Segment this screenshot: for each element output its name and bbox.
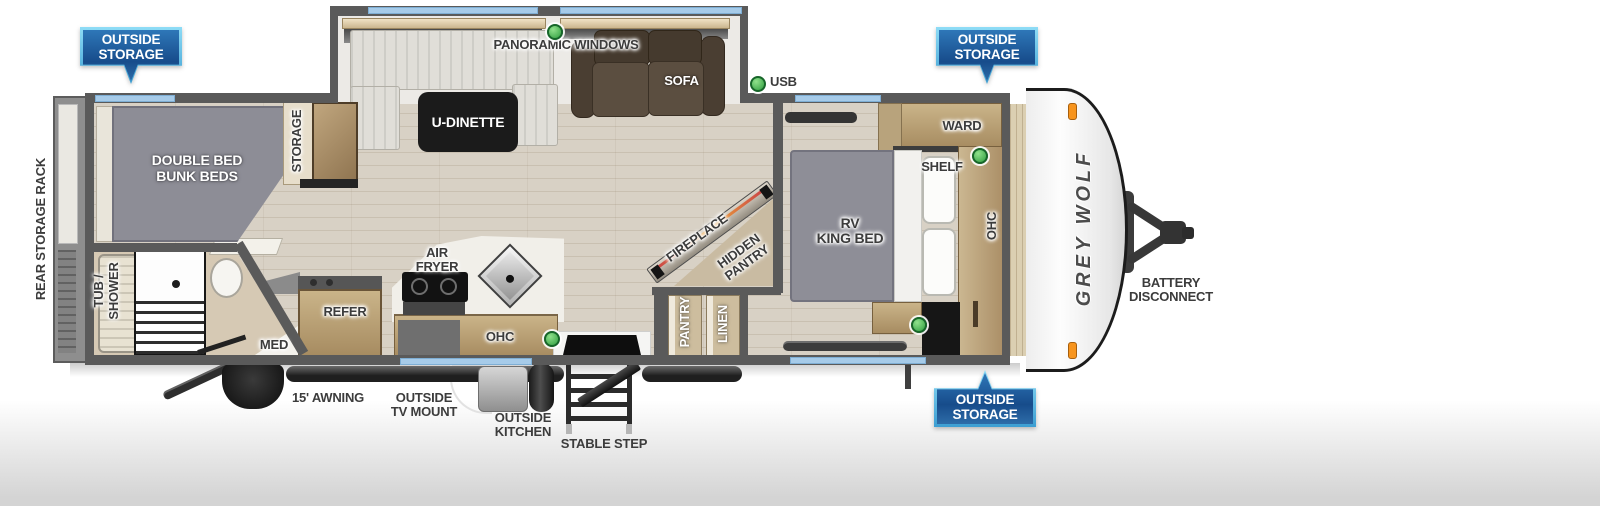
- entry-door-strip: [400, 358, 532, 365]
- bedroom-window-bottom: [790, 357, 926, 364]
- slideout-wall-right: [740, 6, 748, 103]
- dinette-table: U-DINETTE: [418, 92, 518, 152]
- bedroom-window-top: [795, 95, 881, 102]
- rv-king-bed-label: RV KING BED: [806, 216, 894, 246]
- stable-step-label: STABLE STEP: [558, 437, 650, 451]
- outside-storage-banner-bottom-right: OUTSIDE STORAGE: [934, 370, 1036, 427]
- clearance-light-bottom-icon: [1068, 342, 1077, 359]
- window-valance-right: [560, 18, 730, 29]
- outside-storage-banner-top-left: OUTSIDE STORAGE: [80, 27, 182, 84]
- usb-indicator-dot: [750, 76, 766, 92]
- stove-cooktop: [402, 272, 468, 302]
- slideout-window-left: [368, 7, 538, 14]
- entry-mat: [563, 335, 641, 355]
- ground-shadow: [0, 400, 1600, 506]
- refer-hinge-icon: [310, 279, 317, 286]
- front-wall: [1002, 93, 1010, 365]
- awning-rail: [642, 366, 742, 382]
- rear-rack-panel-top: [58, 104, 78, 244]
- outside-kitchen-cylinder: [529, 363, 554, 412]
- ohc-bedroom-label: OHC: [985, 206, 999, 246]
- step-foot: [626, 424, 632, 434]
- outside-tv-mount-label: OUTSIDE TV MOUNT: [384, 391, 464, 419]
- med-label: MED: [252, 338, 296, 352]
- awning-bracket: [905, 361, 911, 389]
- clearance-light-top-icon: [1068, 103, 1077, 120]
- fireplace-endcap: [759, 185, 773, 200]
- step-rung: [569, 402, 629, 407]
- shower-drain-icon: [172, 280, 180, 288]
- burner-icon: [440, 278, 457, 295]
- floorplan-canvas: GREY WOLF BATTERY DISCONNECT REAR STORAG…: [0, 0, 1600, 506]
- step-foot: [566, 424, 572, 434]
- dinette-bench-right: [512, 84, 558, 146]
- step-rung: [569, 416, 629, 421]
- toilet-icon: [210, 258, 243, 298]
- bunk-window: [95, 95, 175, 102]
- panoramic-windows-label: PANORAMIC WINDOWS: [476, 38, 656, 52]
- outside-storage-banner-top-right: OUTSIDE STORAGE: [936, 27, 1038, 84]
- bedroom-tv-bar: [785, 112, 857, 123]
- pantry-right-wall: [740, 293, 748, 357]
- storage-cabinet-box: [312, 102, 358, 184]
- outside-kitchen-box: [478, 366, 528, 412]
- shower-door-slats: [136, 301, 204, 354]
- bedroom-bottom-tv-bar: [783, 341, 907, 351]
- banner-text: OUTSIDE STORAGE: [936, 32, 1038, 62]
- refrigerator-top: [298, 276, 382, 289]
- rear-storage-rack-label: REAR STORAGE RACK: [34, 144, 48, 314]
- ward-label: WARD: [930, 119, 994, 133]
- sofa-seat-cushion: [592, 62, 650, 117]
- usb-indicator-dot: [972, 148, 988, 164]
- refer-label: REFER: [314, 305, 376, 319]
- u-dinette-label: U-DINETTE: [432, 115, 505, 129]
- burner-icon: [411, 278, 428, 295]
- slideout-wall-left: [330, 6, 338, 103]
- pantry-left-wall: [654, 293, 668, 357]
- air-fryer-label: AIR FRYER: [408, 246, 466, 274]
- usb-label: USB: [770, 75, 810, 89]
- oven-front: [403, 302, 465, 315]
- slideout-window-right: [560, 7, 742, 14]
- window-valance-left: [342, 18, 546, 29]
- refrigerator: [298, 289, 382, 357]
- brand-logo: GREY WOLF: [1073, 148, 1097, 308]
- refer-hinge-icon: [326, 279, 333, 286]
- outside-kitchen-label: OUTSIDE KITCHEN: [486, 411, 560, 439]
- sofa-label: SOFA: [654, 74, 709, 88]
- banner-text: OUTSIDE STORAGE: [80, 32, 182, 62]
- storage-label: STORAGE: [290, 101, 304, 181]
- sofa-back-cushion: [648, 30, 702, 65]
- usb-indicator-dot: [544, 331, 560, 347]
- storage-cabinet-base: [300, 179, 358, 188]
- bedroom-ohc-cabinet: [958, 146, 1004, 356]
- awning-label: 15' AWNING: [288, 391, 368, 405]
- bedroom-partition-wall: [773, 103, 783, 293]
- usb-indicator-dot: [547, 24, 563, 40]
- shower-door: [134, 250, 206, 356]
- shelf-label: SHELF: [910, 160, 974, 174]
- tub-shower-label: TUB / SHOWER: [91, 236, 121, 346]
- banner-text: OUTSIDE STORAGE: [934, 392, 1036, 422]
- pillow-icon: [922, 228, 956, 296]
- usb-indicator-dot: [911, 317, 927, 333]
- bedroom-dresser: [922, 302, 960, 356]
- kitchen-cabinet-recess: [398, 320, 460, 355]
- linen-label: LINEN: [716, 294, 730, 354]
- pantry-label: PANTRY: [678, 292, 692, 352]
- sofa-seat-cushion: [648, 61, 704, 116]
- battery-disconnect-label: BATTERY DISCONNECT: [1126, 276, 1216, 304]
- rear-rack-panel-bottom: [58, 250, 76, 353]
- cabinet-handle-icon: [973, 301, 978, 327]
- bunk-platform-strip: [96, 106, 114, 242]
- bunk-bed-label: DOUBLE BED BUNK BEDS: [127, 152, 267, 184]
- ohc-kitchen-label: OHC: [477, 330, 523, 344]
- faucet-icon: [504, 273, 515, 284]
